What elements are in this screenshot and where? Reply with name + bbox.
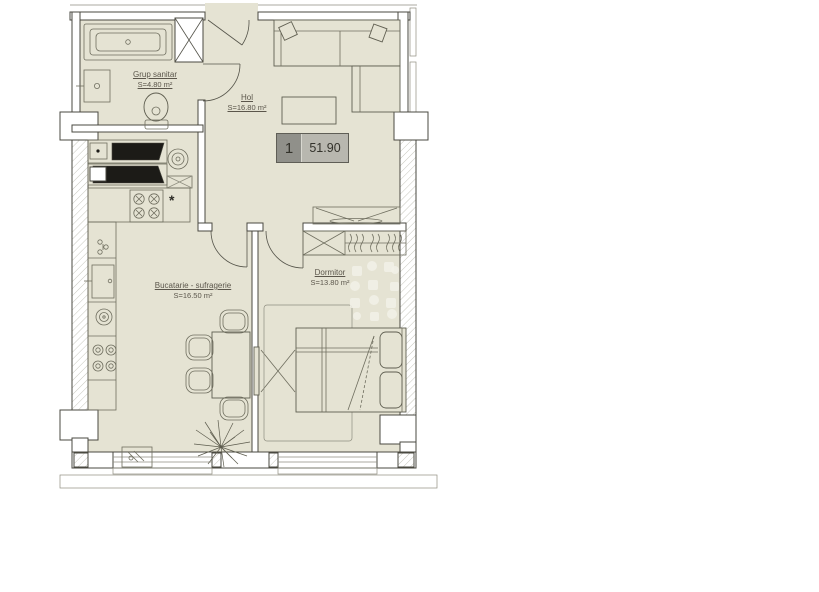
window-kitchen [113, 452, 212, 474]
coffee-table-icon [282, 97, 336, 124]
boiler-marker: * [169, 192, 174, 208]
floor-plan-canvas: Grup sanitar S=4.80 m² Hol S=16.80 m² Bu… [0, 0, 819, 592]
unit-total-area: 51.90 [302, 134, 348, 162]
unit-badge: 1 51.90 [276, 133, 349, 163]
unit-number: 1 [277, 134, 302, 162]
floor-plan-drawing [0, 0, 819, 592]
balcony-line [60, 475, 437, 488]
dining-table-icon [212, 332, 250, 398]
bed-icon [296, 328, 406, 412]
fridge-icon [88, 164, 167, 185]
window-bedroom [278, 452, 377, 474]
shaft-icon [175, 18, 203, 62]
